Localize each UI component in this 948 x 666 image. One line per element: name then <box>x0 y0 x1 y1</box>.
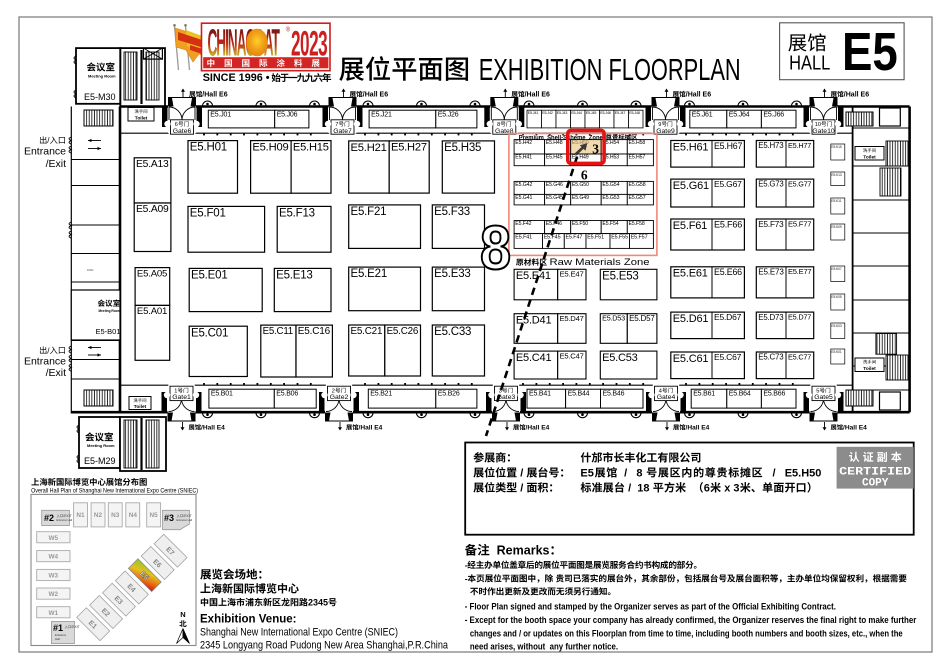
svg-text:E5.A13: E5.A13 <box>136 159 169 170</box>
svg-text:E5.E53: E5.E53 <box>602 270 639 282</box>
svg-text:入口/EXIT: 入口/EXIT <box>177 514 192 518</box>
svg-text:/Hall E4: /Hall E4 <box>201 425 225 432</box>
svg-text:E5.E01: E5.E01 <box>191 270 228 282</box>
svg-text:E5.F66: E5.F66 <box>714 220 742 230</box>
svg-text:E5.D53: E5.D53 <box>602 314 625 323</box>
svg-text:E5.K13: E5.K13 <box>831 173 841 177</box>
svg-text:E5.F50: E5.F50 <box>572 221 588 227</box>
svg-text:E5.J43: E5.J43 <box>557 111 568 115</box>
svg-text:E5.H15: E5.H15 <box>293 141 329 153</box>
svg-text:x 3: x 3 <box>721 483 739 495</box>
svg-text:E5.H77: E5.H77 <box>788 141 811 150</box>
svg-text:E5.H41: E5.H41 <box>515 155 532 161</box>
svg-text:2345 Longyang Road Pudong New: 2345 Longyang Road Pudong New Area Shang… <box>200 640 449 652</box>
svg-text:EXHIBITION FLOORPLAN: EXHIBITION FLOORPLAN <box>479 53 741 87</box>
svg-text:W5: W5 <box>49 535 59 542</box>
svg-text:2345: 2345 <box>308 598 328 608</box>
svg-text:E5.F41: E5.F41 <box>515 235 532 241</box>
svg-text:Premium Shell-Scheme Zone: Premium Shell-Scheme Zone <box>519 135 603 142</box>
svg-text:Gate9: Gate9 <box>656 128 675 135</box>
svg-text:E5.E47: E5.E47 <box>560 270 584 279</box>
svg-text:E5.C21: E5.C21 <box>351 326 383 337</box>
svg-text:E5.E66: E5.E66 <box>714 267 742 277</box>
svg-text:E5.J06: E5.J06 <box>277 112 298 119</box>
svg-text:#1: #1 <box>53 623 63 633</box>
svg-text:- Floor Plan signed and stampe: - Floor Plan signed and stamped by the O… <box>465 602 836 613</box>
svg-text:E5.G46: E5.G46 <box>546 182 563 188</box>
svg-text:/Hall E6: /Hall E6 <box>363 92 388 99</box>
svg-text:E5.F77: E5.F77 <box>788 220 811 229</box>
svg-text:E5.B06: E5.B06 <box>276 391 298 398</box>
svg-text:E5.H49: E5.H49 <box>572 155 589 161</box>
svg-text:E5.K07: E5.K07 <box>831 267 841 271</box>
svg-text:6: 6 <box>581 167 588 182</box>
svg-text:E5.B66: E5.B66 <box>763 391 785 398</box>
svg-text:E5.E77: E5.E77 <box>788 267 811 276</box>
svg-text:E5.B61: E5.B61 <box>693 391 715 398</box>
svg-text:E5.B46: E5.B46 <box>603 391 625 398</box>
svg-text:E5.E21: E5.E21 <box>351 268 388 280</box>
svg-text:E5.D57: E5.D57 <box>629 314 655 323</box>
svg-text:E5.H73: E5.H73 <box>758 141 784 150</box>
svg-text:E5.G53: E5.G53 <box>602 195 619 201</box>
svg-text:®: ® <box>286 27 291 34</box>
svg-text:E5.E33: E5.E33 <box>434 268 471 280</box>
svg-text:/Hall E4: /Hall E4 <box>686 425 710 432</box>
svg-text:E5.D67: E5.D67 <box>714 312 742 322</box>
svg-text:E5.A01: E5.A01 <box>137 306 167 317</box>
svg-text:E5.F73: E5.F73 <box>758 220 784 229</box>
svg-text:W1: W1 <box>49 610 59 617</box>
svg-text:E5.C01: E5.C01 <box>191 327 228 339</box>
svg-text:E5.C67: E5.C67 <box>714 352 742 362</box>
svg-text:N4: N4 <box>129 512 138 519</box>
svg-text:E5.B26: E5.B26 <box>438 391 460 398</box>
svg-text:/Hall E6: /Hall E6 <box>686 92 711 99</box>
svg-text:- Except for the booth space y: - Except for the booth space your compan… <box>465 615 917 626</box>
svg-text:E5.H58: E5.H58 <box>629 140 646 146</box>
svg-text:/Hall E6: /Hall E6 <box>844 92 869 99</box>
svg-text:E5.C16: E5.C16 <box>298 326 331 337</box>
svg-text:W3: W3 <box>49 573 59 580</box>
svg-text:/Hall E4: /Hall E4 <box>526 425 550 432</box>
svg-text:/ 8: / 8 <box>618 468 646 480</box>
svg-text:E5.J44: E5.J44 <box>571 111 582 115</box>
svg-text:E5.B41: E5.B41 <box>529 391 551 398</box>
svg-text:E5.F55: E5.F55 <box>611 235 628 241</box>
svg-text:Entrance: Entrance <box>24 356 66 368</box>
svg-text:N3: N3 <box>111 512 120 519</box>
svg-text:E5.E41: E5.E41 <box>516 270 551 282</box>
svg-text:E5.D73: E5.D73 <box>758 313 784 322</box>
svg-text:E5: E5 <box>580 468 594 480</box>
svg-text:E5.K11: E5.K11 <box>831 199 841 203</box>
svg-text:/Exit: /Exit <box>46 158 67 170</box>
svg-text:E5.H67: E5.H67 <box>714 141 742 151</box>
svg-text:Entrance: Entrance <box>24 146 66 158</box>
svg-text:COPY: COPY <box>862 478 889 490</box>
svg-text:E5.J47: E5.J47 <box>615 111 626 115</box>
svg-text:E5.F42: E5.F42 <box>515 221 531 227</box>
svg-text:E5.J48: E5.J48 <box>629 111 640 115</box>
svg-text:E5.D61: E5.D61 <box>673 313 709 325</box>
svg-text:E5.K03: E5.K03 <box>831 324 841 328</box>
svg-text:/Hall E6: /Hall E6 <box>202 92 227 99</box>
svg-text:/ E5.H50: / E5.H50 <box>763 468 821 480</box>
svg-text:E5.J42: E5.J42 <box>542 111 553 115</box>
svg-text:E5.J66: E5.J66 <box>763 112 784 119</box>
svg-text:Meeting Room: Meeting Room <box>87 443 115 448</box>
svg-text:E5.F61: E5.F61 <box>673 220 707 232</box>
svg-text:-: - <box>465 560 468 570</box>
svg-text:N1: N1 <box>76 512 85 519</box>
svg-text:Raw Materials Zone: Raw Materials Zone <box>550 257 650 267</box>
svg-text:E5.D47: E5.D47 <box>560 314 584 323</box>
svg-text:/: / <box>517 468 526 480</box>
svg-text:Gate7: Gate7 <box>333 128 352 135</box>
svg-text:入口/EXIT: 入口/EXIT <box>57 514 72 518</box>
svg-text:8: 8 <box>480 214 511 282</box>
svg-text:E5.F51: E5.F51 <box>587 235 604 241</box>
svg-text:E5.H45: E5.H45 <box>546 155 563 161</box>
svg-text:E5.E13: E5.E13 <box>276 270 313 282</box>
svg-text:E5.G61: E5.G61 <box>673 180 709 192</box>
svg-text:E5.D77: E5.D77 <box>788 312 811 321</box>
svg-text:#2: #2 <box>44 513 54 523</box>
svg-text:E5.H61: E5.H61 <box>673 141 709 153</box>
svg-text:Exhibition Venue:: Exhibition Venue: <box>200 614 296 626</box>
svg-text:E5.G54: E5.G54 <box>602 182 619 188</box>
svg-text:Gate10: Gate10 <box>812 128 835 135</box>
svg-text:E5.J01: E5.J01 <box>210 112 231 119</box>
svg-text:/Hall E4: /Hall E4 <box>359 425 383 432</box>
svg-text:changes and / or updates on th: changes and / or updates on this Floorpl… <box>470 628 903 639</box>
svg-text:E5.C33: E5.C33 <box>434 326 471 338</box>
svg-text:E5.G77: E5.G77 <box>788 179 811 188</box>
svg-text:E5.H09: E5.H09 <box>252 142 288 154</box>
svg-text:E5.G41: E5.G41 <box>515 195 532 201</box>
svg-text:E5.H21: E5.H21 <box>351 142 387 154</box>
svg-text:SINCE 1996 •: SINCE 1996 • <box>203 72 273 84</box>
svg-text:E5.C47: E5.C47 <box>560 351 584 360</box>
svg-text:E5.F33: E5.F33 <box>434 206 470 218</box>
svg-text:E5.J46: E5.J46 <box>600 111 611 115</box>
svg-text:E5.C26: E5.C26 <box>387 326 419 337</box>
svg-text:Gate4: Gate4 <box>657 394 676 401</box>
svg-text:Hall: Hall <box>55 637 60 641</box>
svg-text:W4: W4 <box>49 554 59 561</box>
svg-text:E5.J41: E5.J41 <box>528 111 539 115</box>
svg-text:E5.F58: E5.F58 <box>629 221 645 227</box>
svg-text:E5.J64: E5.J64 <box>729 112 750 119</box>
svg-text:E5.C11: E5.C11 <box>263 326 293 337</box>
svg-text:D091: D091 <box>87 268 94 272</box>
svg-text:E5: E5 <box>842 22 898 82</box>
svg-text:Remarks: Remarks <box>490 544 550 558</box>
svg-text:N2: N2 <box>94 512 103 519</box>
svg-text:Gate6: Gate6 <box>173 128 192 135</box>
svg-text:E5-M29: E5-M29 <box>84 456 116 466</box>
svg-text:E5.J26: E5.J26 <box>438 112 459 119</box>
svg-text:Gate5: Gate5 <box>814 394 833 401</box>
svg-text:E5.F13: E5.F13 <box>279 208 315 220</box>
svg-text:N: N <box>180 610 185 619</box>
svg-text:E5.E61: E5.E61 <box>673 268 708 280</box>
svg-text:E5.H01: E5.H01 <box>190 142 227 154</box>
svg-text:Shanghai New International Exp: Shanghai New International Expo Centre (… <box>200 627 398 639</box>
svg-text:6: 6 <box>704 483 710 495</box>
svg-text:E5.E73: E5.E73 <box>758 268 784 277</box>
svg-text:#3: #3 <box>164 513 174 523</box>
svg-text:E5.C41: E5.C41 <box>516 352 552 364</box>
svg-text:E5.G42: E5.G42 <box>515 182 532 188</box>
svg-text:E5.H27: E5.H27 <box>391 142 427 154</box>
svg-text:E5.B01: E5.B01 <box>211 391 233 398</box>
svg-text:need arises, without any furt: need arises, without any further notice. <box>470 642 618 653</box>
svg-text:E5.J21: E5.J21 <box>371 112 392 119</box>
svg-text:E5.G49: E5.G49 <box>572 195 589 201</box>
svg-text:/Hall E4: /Hall E4 <box>843 425 867 432</box>
svg-text:E5.H57: E5.H57 <box>629 155 646 161</box>
svg-text:E5-M30: E5-M30 <box>84 92 116 102</box>
svg-text:E5.B21: E5.B21 <box>370 391 392 398</box>
svg-text:N5: N5 <box>150 512 159 519</box>
svg-text:E5.C53: E5.C53 <box>602 352 638 364</box>
svg-text:/Hall E6: /Hall E6 <box>525 92 550 99</box>
svg-text:E5.K15: E5.K15 <box>831 145 841 149</box>
svg-text:Entrance Hall: Entrance Hall <box>177 518 193 522</box>
svg-text:Entrance Hall: Entrance Hall <box>57 518 73 522</box>
svg-text:/Exit: /Exit <box>46 367 67 379</box>
svg-text:Toilet: Toilet <box>134 404 147 410</box>
svg-text:E5.G58: E5.G58 <box>629 182 646 188</box>
svg-text:Meeting Room: Meeting Room <box>99 309 121 313</box>
svg-text:E5.J61: E5.J61 <box>692 112 713 119</box>
svg-text:E5.K01: E5.K01 <box>831 350 841 354</box>
svg-text:E5.K05: E5.K05 <box>831 295 841 299</box>
svg-text:/: / <box>517 483 526 495</box>
svg-text:E5.F46: E5.F46 <box>546 221 562 227</box>
svg-text:E5.F54: E5.F54 <box>602 221 618 227</box>
svg-text:/ 18: / 18 <box>625 483 653 495</box>
svg-text:入口/EXIT: 入口/EXIT <box>65 625 80 629</box>
svg-text:E5.C73: E5.C73 <box>758 353 784 362</box>
svg-text:Overall Hall Plan of Shanghai: Overall Hall Plan of Shanghai New Intern… <box>31 488 198 495</box>
svg-text:HALL: HALL <box>789 52 830 75</box>
svg-text:E5.G45: E5.G45 <box>546 195 563 201</box>
svg-text:E5.G67: E5.G67 <box>714 179 742 189</box>
svg-text:E5.F57: E5.F57 <box>631 235 648 241</box>
svg-text:E5.A09: E5.A09 <box>136 204 169 215</box>
svg-text:E5.C61: E5.C61 <box>673 353 709 365</box>
svg-text:E5-B01: E5-B01 <box>96 327 121 336</box>
svg-text:-: - <box>465 574 468 584</box>
svg-text:E5.G57: E5.G57 <box>629 195 646 201</box>
svg-text:Gate1: Gate1 <box>172 394 191 401</box>
svg-text:E5.F47: E5.F47 <box>566 235 583 241</box>
svg-text:E5.F21: E5.F21 <box>351 206 387 218</box>
svg-text:E5.F01: E5.F01 <box>190 208 226 220</box>
svg-text:E5.G50: E5.G50 <box>572 182 589 188</box>
svg-text:E5.J45: E5.J45 <box>586 111 597 115</box>
svg-text:E5.H35: E5.H35 <box>444 142 481 154</box>
svg-text:E5.C77: E5.C77 <box>788 352 811 361</box>
svg-text:Toilet: Toilet <box>135 116 148 122</box>
svg-text:E5.G73: E5.G73 <box>758 180 783 189</box>
svg-text:E5.B64: E5.B64 <box>729 391 751 398</box>
svg-text:W2: W2 <box>49 591 59 598</box>
svg-text:3: 3 <box>592 141 599 156</box>
svg-text:Toilet: Toilet <box>863 155 876 161</box>
svg-text:E5.B44: E5.B44 <box>568 391 590 398</box>
svg-text:Meeting Room: Meeting Room <box>88 74 116 79</box>
svg-text:E5.K09: E5.K09 <box>831 225 841 229</box>
svg-text:Toilet: Toilet <box>863 366 876 372</box>
svg-text:E5.A05: E5.A05 <box>137 268 167 279</box>
svg-text:Gate2: Gate2 <box>330 394 349 401</box>
